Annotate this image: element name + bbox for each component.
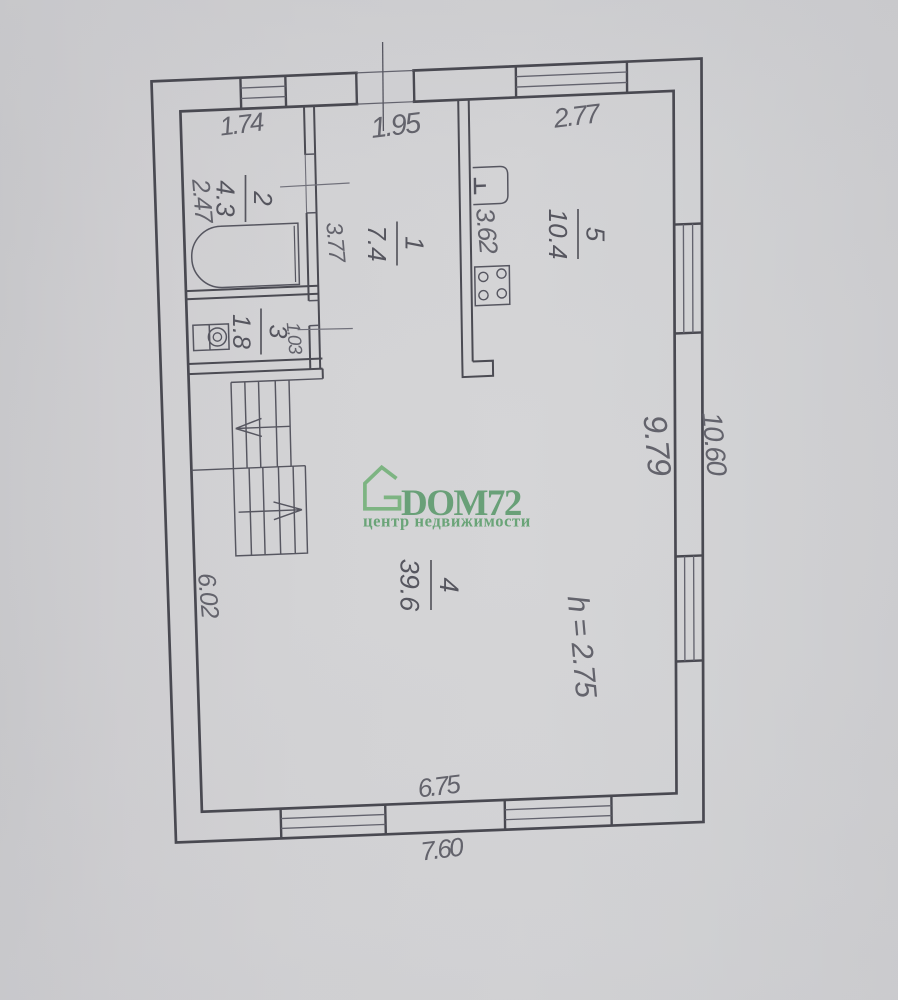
- svg-text:5: 5: [581, 227, 611, 242]
- svg-text:1.8: 1.8: [227, 314, 255, 349]
- svg-text:4.3: 4.3: [210, 180, 240, 217]
- svg-text:7.60: 7.60: [419, 831, 466, 866]
- svg-text:h = 2.75: h = 2.75: [561, 594, 603, 699]
- svg-text:10.60: 10.60: [696, 411, 733, 478]
- svg-text:39.6: 39.6: [395, 559, 425, 613]
- svg-text:1.95: 1.95: [369, 107, 424, 145]
- svg-text:2.77: 2.77: [551, 98, 603, 134]
- svg-text:6.02: 6.02: [192, 572, 224, 620]
- svg-text:1: 1: [400, 236, 430, 250]
- svg-text:центр недвижимости: центр недвижимости: [363, 512, 531, 531]
- svg-text:2: 2: [248, 190, 278, 206]
- svg-text:4: 4: [434, 577, 464, 592]
- svg-text:3.77: 3.77: [321, 221, 351, 265]
- svg-text:10.4: 10.4: [543, 209, 573, 260]
- svg-text:9.79: 9.79: [636, 413, 678, 477]
- svg-text:1.74: 1.74: [218, 106, 265, 141]
- svg-text:3: 3: [263, 325, 291, 339]
- svg-text:7.4: 7.4: [362, 225, 392, 261]
- svg-text:6.75: 6.75: [416, 768, 463, 803]
- svg-text:3.62: 3.62: [470, 207, 504, 256]
